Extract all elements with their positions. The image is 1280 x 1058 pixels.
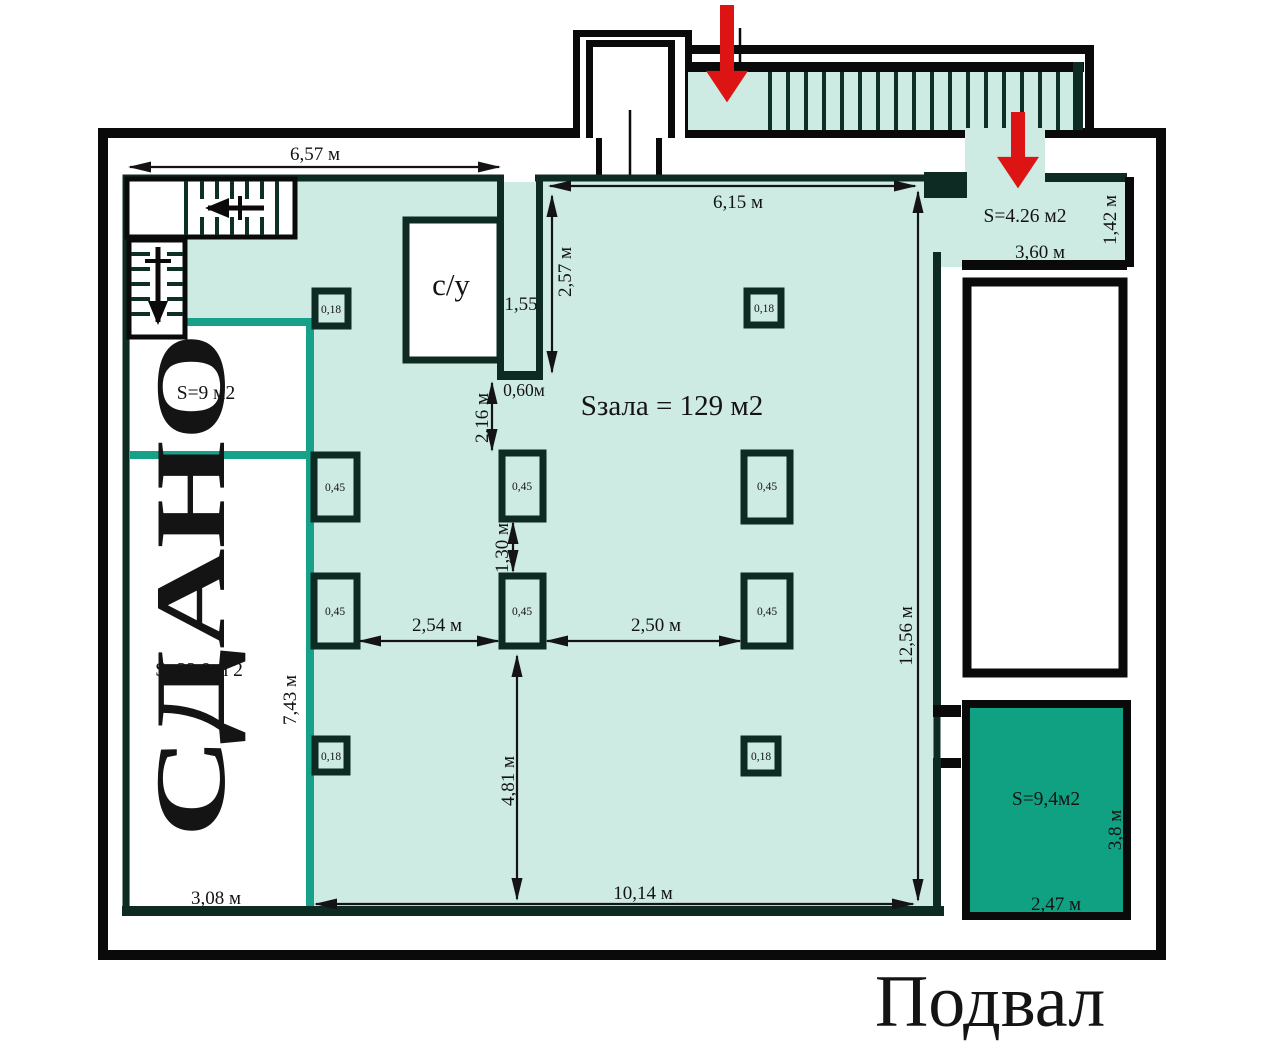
entry-area-label: S=4.26 м2: [984, 206, 1067, 227]
column-large-label: 0,45: [325, 482, 345, 494]
corridor-left-wall: [497, 175, 504, 380]
back-room-walls: [966, 704, 1127, 916]
dim-corridor-width: 1,55: [504, 294, 537, 315]
wc-label: с/у: [432, 267, 470, 302]
dim-label-615: 6,15 м: [713, 192, 763, 213]
column-large-label: 0,45: [757, 606, 777, 618]
column-large-label: 0,45: [512, 481, 532, 493]
stair-shaft-inner-right-wall: [1073, 62, 1083, 130]
dim-label-254: 2,54 м: [412, 615, 462, 636]
stair-to-entry-opening: [965, 128, 1045, 182]
rented-area: S=9 м2 S=22.9 м 2 СДАНО 7,43 м 3,08 м: [130, 318, 314, 912]
dim-label-250: 2,50 м: [631, 615, 681, 636]
door-jamb-right: [656, 138, 662, 175]
entry-right-wall: [1125, 177, 1134, 267]
column-small-label: 0,18: [754, 303, 774, 315]
interior-stairs-upper: [127, 179, 295, 237]
street-staircase: [688, 45, 1094, 130]
right-wall-lower: [933, 758, 941, 912]
column-small-label: 0,18: [321, 751, 341, 763]
dim-rented-bottom: 3,08 м: [191, 888, 241, 909]
column-large-label: 0,45: [512, 606, 532, 618]
wc-room: с/у: [406, 220, 500, 360]
floor-plan-page: S=9 м2 S=22.9 м 2 СДАНО 7,43 м 3,08 м с/…: [0, 0, 1280, 1058]
door-jamb-left: [596, 138, 602, 175]
dim-label-216: 2,16 м: [472, 393, 493, 443]
stair-shaft-inner-top-wall: [688, 62, 1084, 72]
corridor-right-wall: [536, 175, 543, 375]
dim-entry-width: 3,60 м: [1015, 242, 1065, 263]
hall-area-label: Sзала = 129 м2: [581, 390, 764, 422]
back-room: S=9,4м2 3,8 м 2,47 м: [966, 704, 1127, 916]
floor-plan-drawing: S=9 м2 S=22.9 м 2 СДАНО 7,43 м 3,08 м с/…: [0, 0, 1280, 1058]
page-title: Подвал: [875, 961, 1105, 1043]
interior-bottom-wall: [122, 906, 944, 916]
doorway-stub-top: [933, 705, 961, 717]
corridor-top-opening: [504, 171, 535, 182]
dim-label-657: 6,57 м: [290, 144, 340, 165]
column-large-label: 0,45: [757, 481, 777, 493]
column-small-label: 0,18: [751, 751, 771, 763]
dim-label-1256: 12,56 м: [896, 606, 917, 666]
corridor-end-cap: [497, 371, 543, 380]
dim-label-1014: 10,14 м: [613, 883, 673, 904]
entry-zone: S=4.26 м2 3,60 м 1,42 м: [924, 172, 1134, 270]
dim-corridor-gap: 0,60м: [503, 380, 545, 400]
back-room-area-label: S=9,4м2: [1012, 789, 1080, 810]
column-large-label: 0,45: [325, 606, 345, 618]
dim-back-room-height: 3,8 м: [1105, 810, 1126, 851]
entry-step-wall: [924, 172, 967, 198]
right-wall-upper: [933, 252, 941, 707]
stair-shaft-outer-top-wall: [688, 45, 1094, 54]
entry-top-wall: [1045, 173, 1127, 182]
hall-entry-connection: [929, 198, 943, 254]
green-divider-top: [183, 318, 311, 326]
dim-label-257: 2,57 м: [555, 247, 576, 297]
interior-stairs-lower: [129, 240, 185, 337]
rented-status-label: СДАНО: [135, 333, 246, 838]
dim-entry-depth: 1,42 м: [1100, 195, 1121, 245]
entrance-vestibule-top: [573, 30, 692, 138]
column-small-label: 0,18: [321, 304, 341, 316]
dim-label-481: 4,81 м: [498, 756, 519, 806]
dim-back-room-width: 2,47 м: [1031, 894, 1081, 915]
dim-label-130: 1,30 м: [492, 523, 513, 573]
vestibule-door-opening: [602, 129, 655, 175]
dim-rented-height: 7,43 м: [280, 675, 301, 725]
storage-room: [967, 282, 1123, 673]
stair-shaft-outer-right-wall: [1085, 45, 1094, 128]
